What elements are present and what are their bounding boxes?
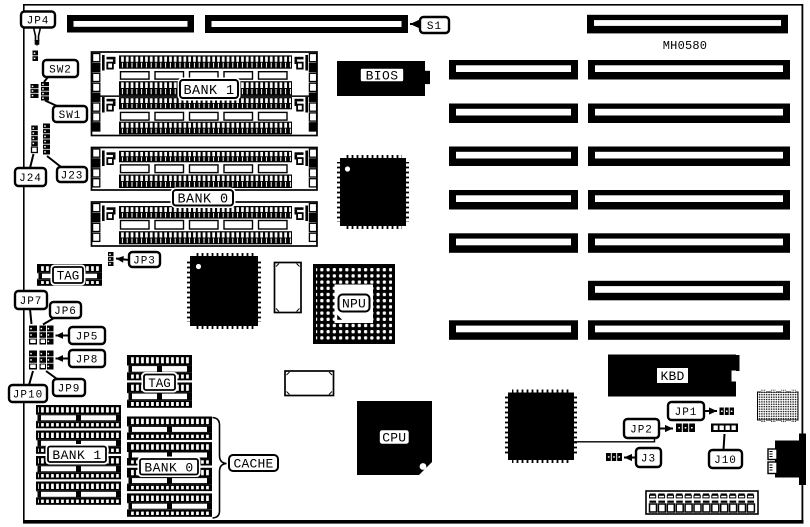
svg-text:BIOS: BIOS [366,69,399,84]
svg-text:JP6: JP6 [54,306,77,318]
svg-text:JP7: JP7 [20,296,43,308]
svg-text:BANK 1: BANK 1 [52,448,101,463]
svg-text:NPU: NPU [342,297,366,312]
svg-text:J24: J24 [19,173,42,185]
svg-text:BANK 1: BANK 1 [183,84,234,99]
svg-text:JP2: JP2 [630,425,653,437]
svg-text:JP3: JP3 [133,256,156,268]
svg-text:CPU: CPU [382,431,406,446]
svg-text:SW2: SW2 [49,65,72,77]
svg-text:J10: J10 [714,455,737,467]
svg-text:TAG: TAG [57,270,80,284]
svg-text:JP10: JP10 [13,390,43,402]
svg-text:BANK 0: BANK 0 [177,193,228,208]
svg-text:S1: S1 [427,21,442,33]
svg-text:CACHE: CACHE [233,457,273,472]
svg-text:KBD: KBD [660,369,684,384]
svg-text:JP9: JP9 [58,384,81,396]
svg-text:J23: J23 [61,171,84,183]
svg-text:J3: J3 [641,454,656,466]
svg-text:SW1: SW1 [59,110,82,122]
svg-text:MH0580: MH0580 [663,39,707,53]
svg-text:JP4: JP4 [27,16,50,28]
svg-text:JP8: JP8 [76,355,99,367]
svg-text:TAG: TAG [148,377,171,391]
svg-text:JP5: JP5 [76,332,99,344]
svg-text:BANK 0: BANK 0 [144,460,193,475]
svg-text:JP1: JP1 [675,407,698,419]
